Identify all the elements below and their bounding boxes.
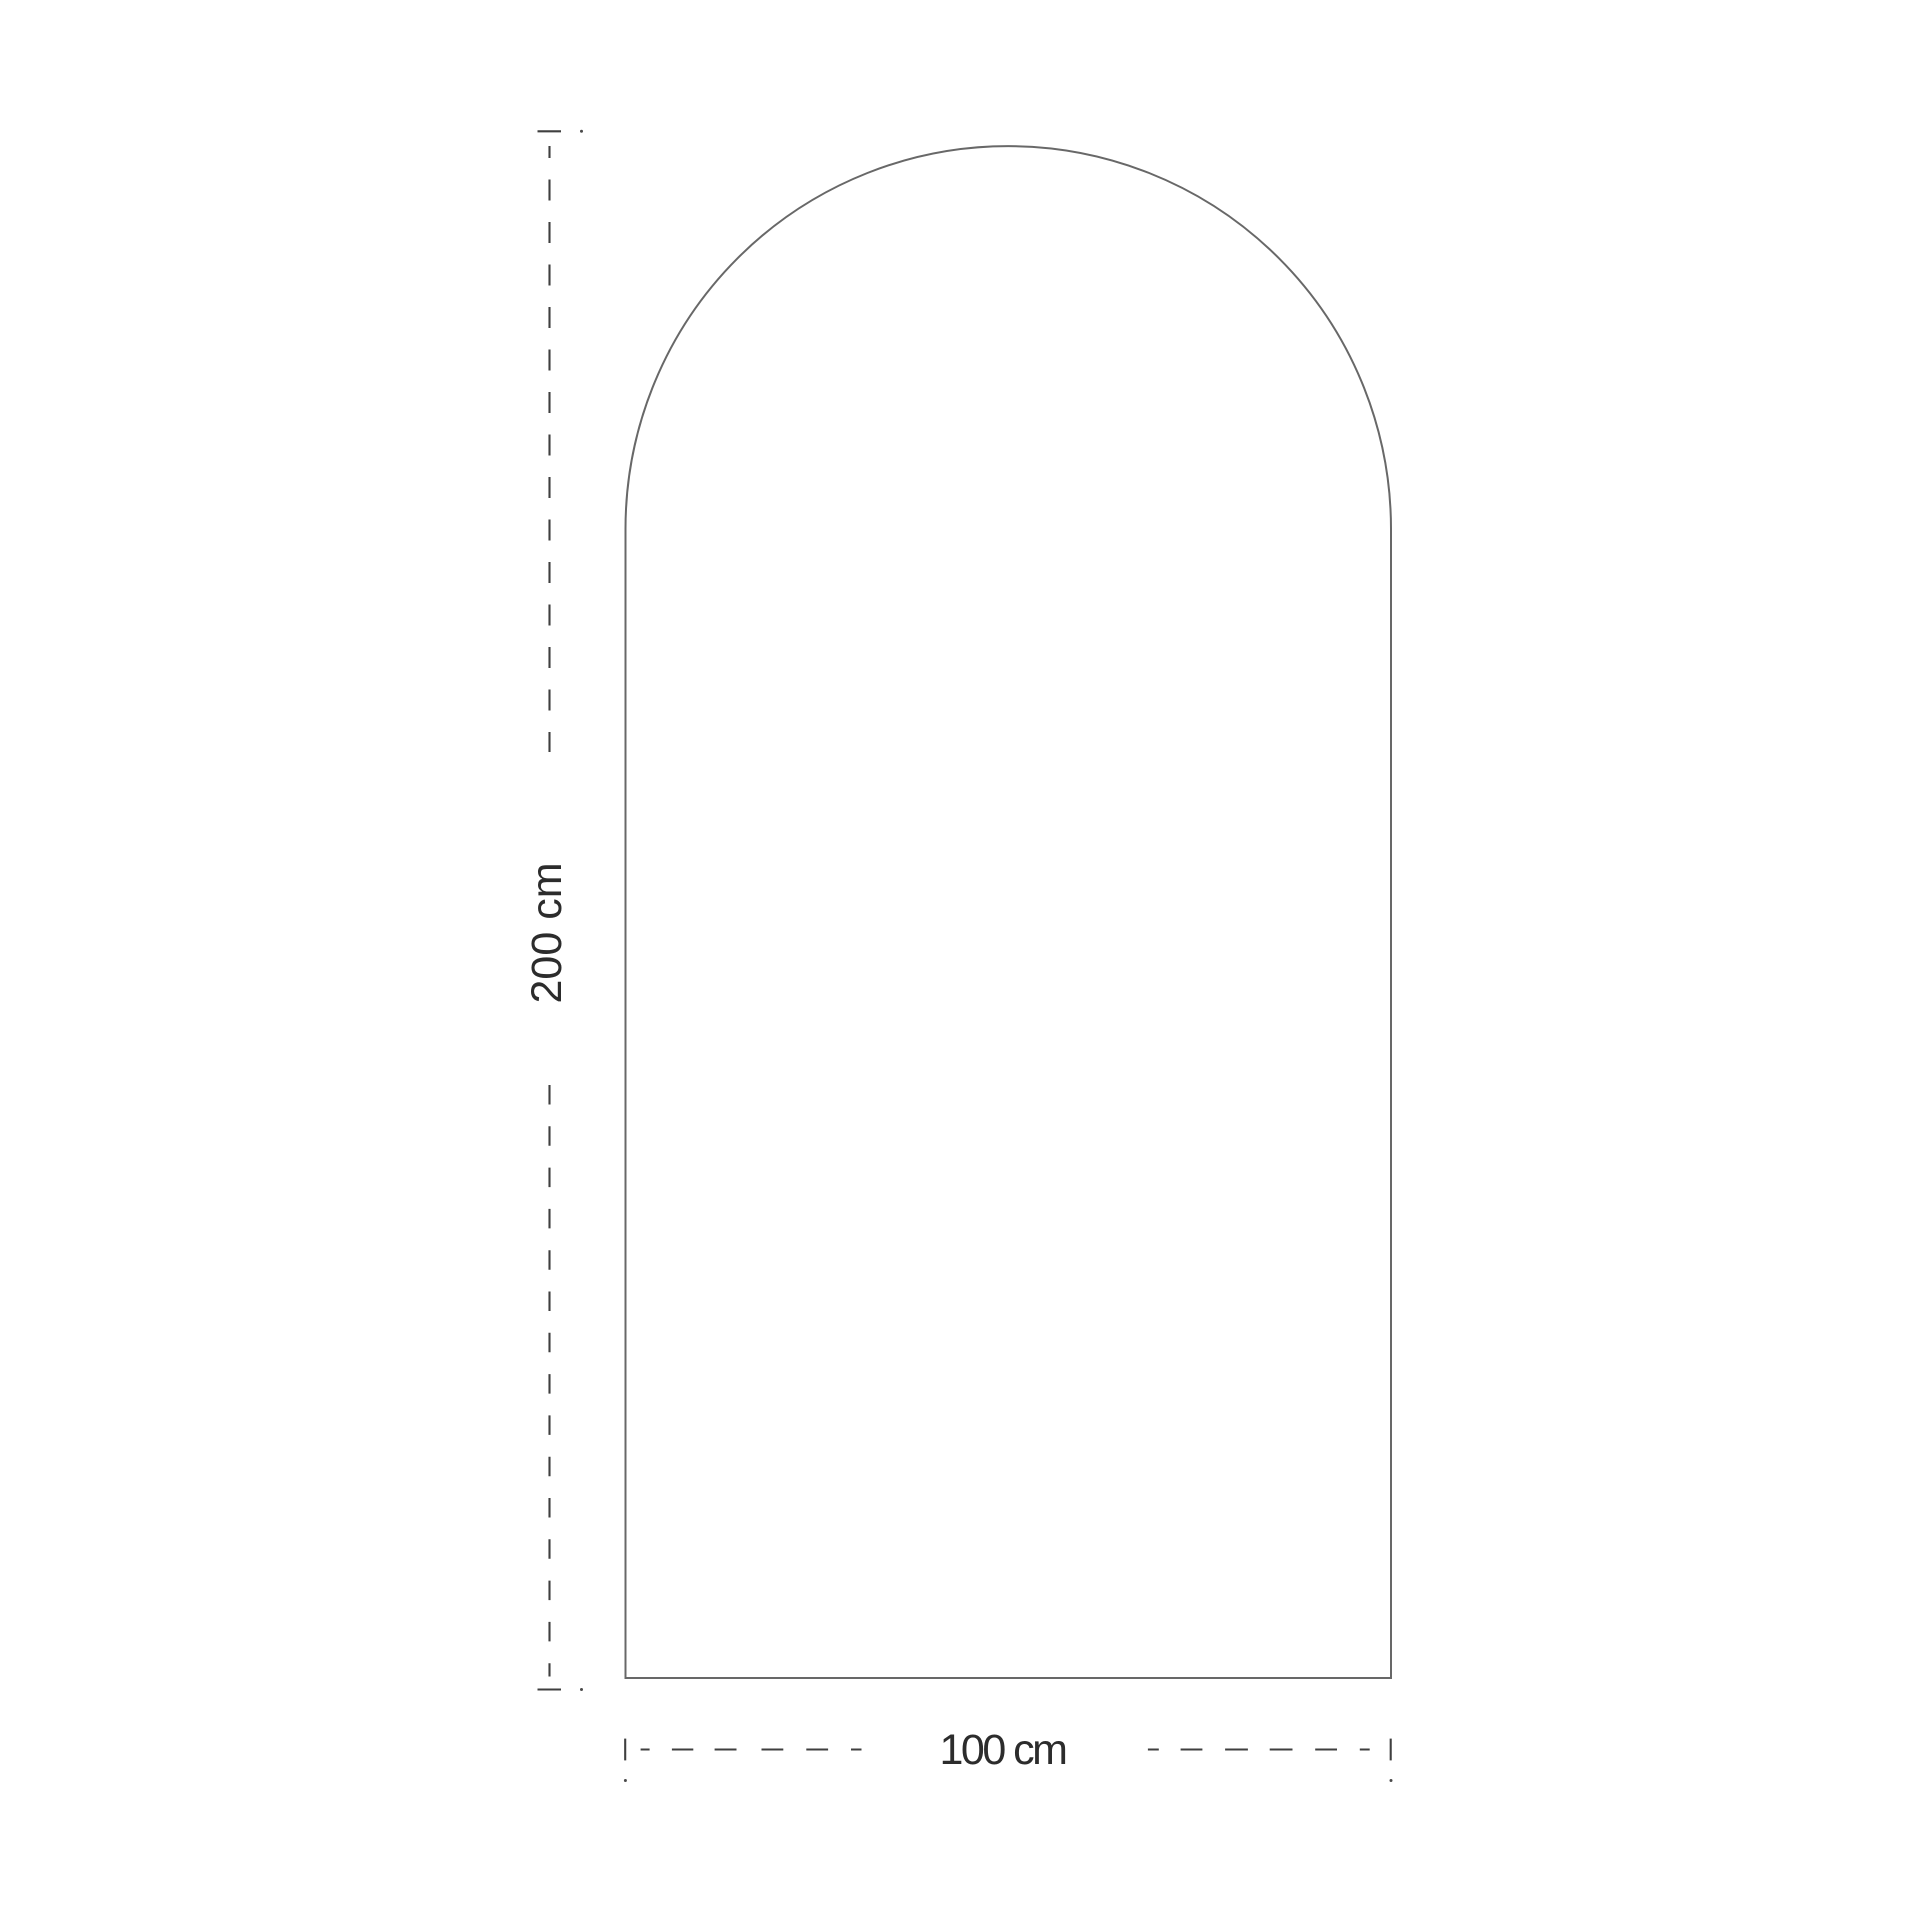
svg-text:100 cm: 100 cm [939, 1726, 1065, 1774]
svg-text:200 cm: 200 cm [523, 862, 571, 1003]
